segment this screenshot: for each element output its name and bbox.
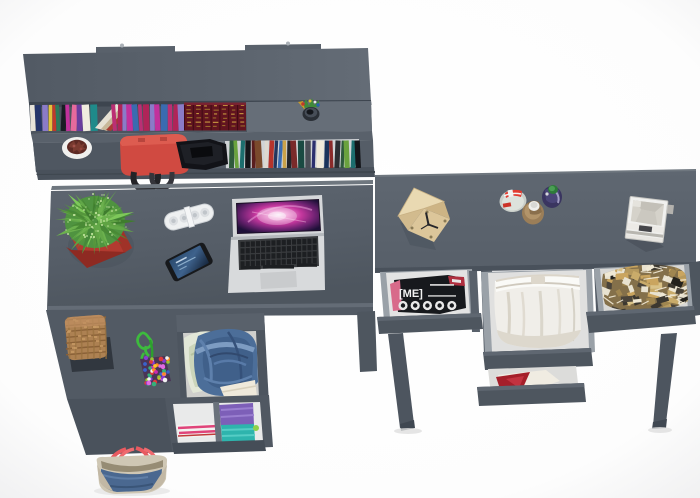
svg-text:[ME]: [ME] [399, 288, 423, 300]
